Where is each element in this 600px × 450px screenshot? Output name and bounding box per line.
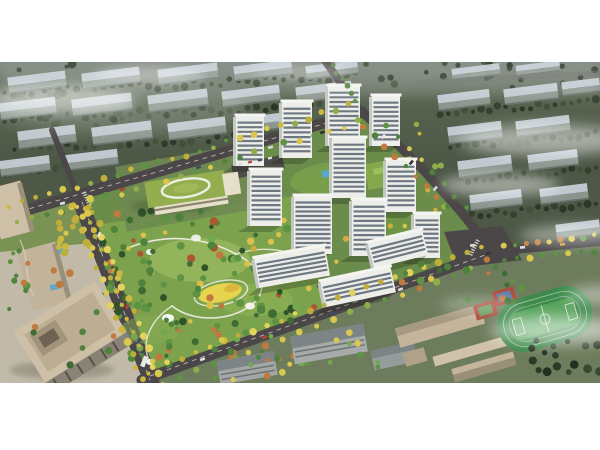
architectural-rendering-page <box>0 0 600 450</box>
aerial-site-rendering-image <box>0 0 600 450</box>
